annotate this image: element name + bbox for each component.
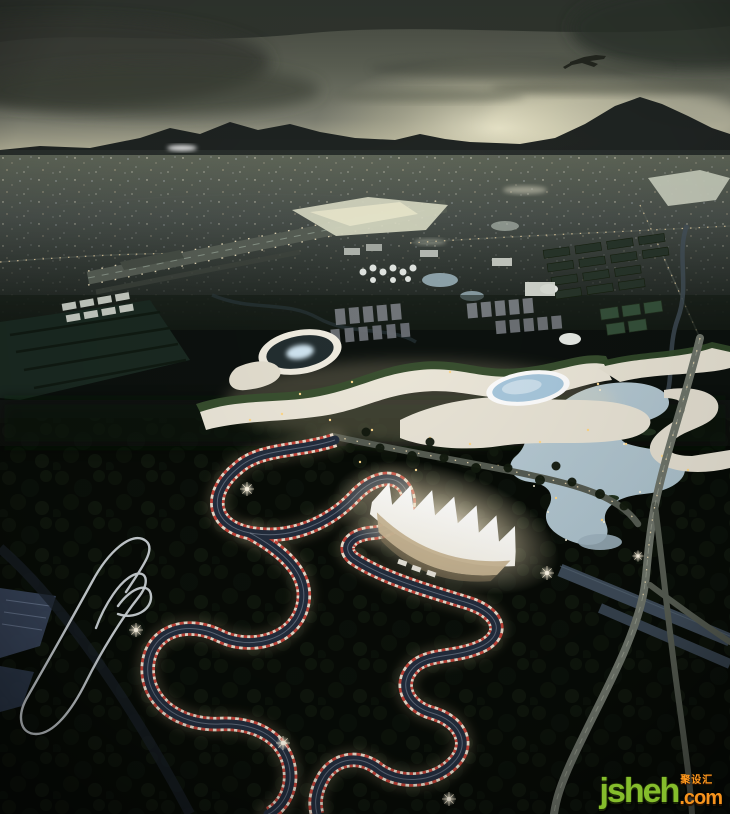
watermark[interactable]: jsheh 聚设汇 .com [600, 774, 723, 808]
watermark-brand[interactable]: jsheh [600, 774, 679, 808]
watermark-tld[interactable]: .com [679, 787, 722, 809]
scene-rendering [0, 0, 730, 814]
watermark-badge: 聚设汇 [680, 776, 713, 786]
vignette [0, 0, 730, 814]
rendering-canvas: jsheh 聚设汇 .com [0, 0, 730, 814]
